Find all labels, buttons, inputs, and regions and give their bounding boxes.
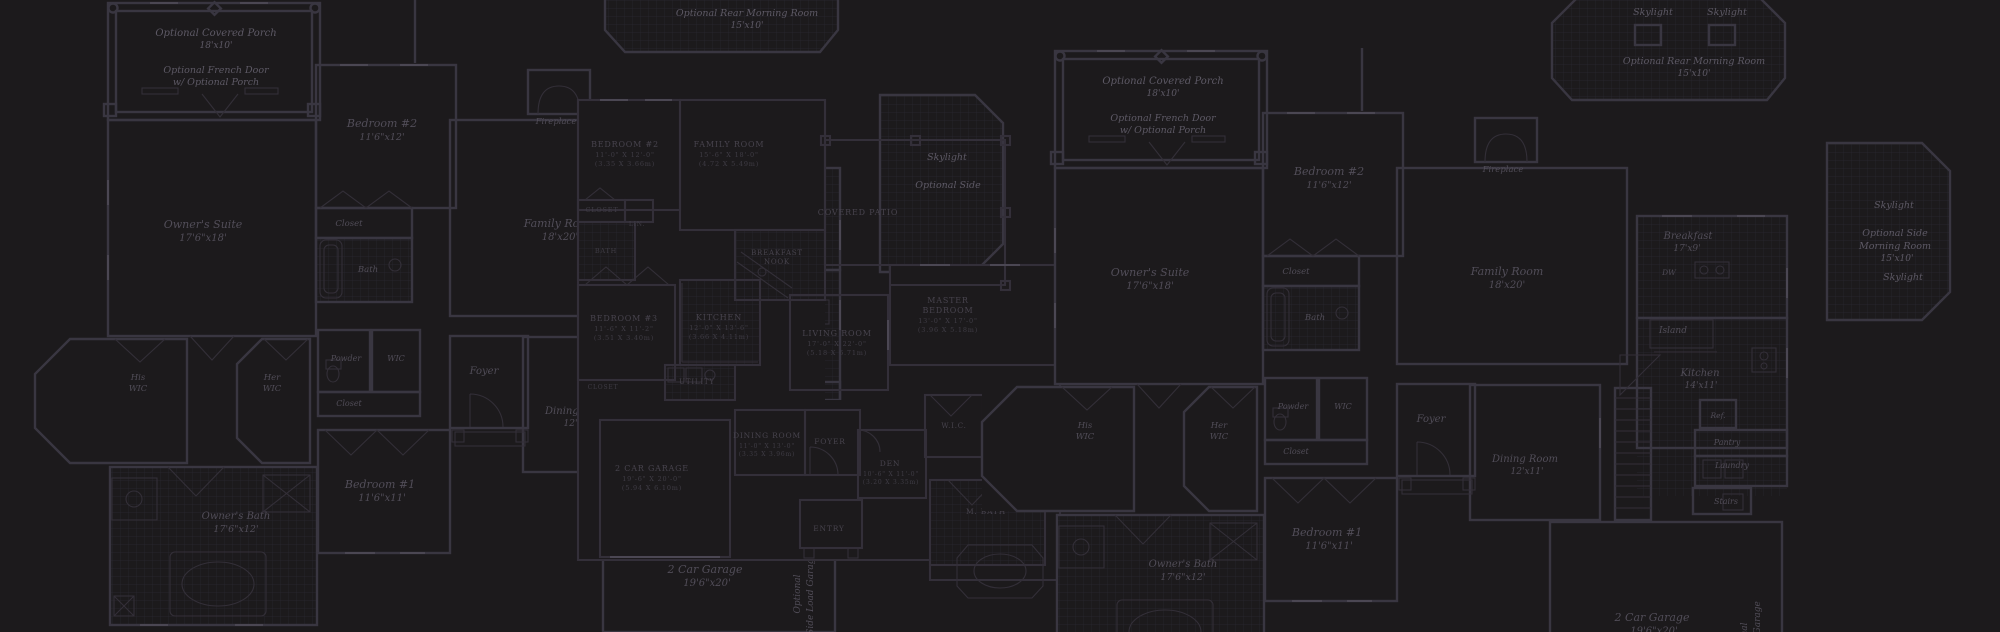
room-label: Kitchen — [1679, 368, 1719, 379]
room-label: Closet — [1282, 267, 1310, 277]
room-label: 11'-6" X 11'-2" — [594, 325, 654, 333]
room-label: Optional Covered Porch — [155, 28, 276, 39]
room-label: BEDROOM — [922, 306, 973, 315]
room-label: 19'-6" X 20'-0" — [622, 475, 682, 483]
room-label: 2 Car Garage — [1614, 611, 1690, 624]
room-label: 11'6"x11' — [1305, 541, 1353, 552]
room-label: DW — [1661, 268, 1677, 277]
room-label: Island — [1658, 326, 1687, 336]
room-label: Bedroom #2 — [1293, 165, 1364, 178]
room-label: 17'6"x12' — [213, 524, 258, 535]
room-label: w/ Optional Porch — [173, 77, 259, 88]
room-label: Ref. — [1710, 411, 1726, 420]
room-label: Powder — [330, 354, 363, 363]
room-label: 10'-6" X 11'-0" — [863, 471, 919, 478]
room-label: 17'6"x18' — [179, 233, 227, 244]
room-label: Family Room — [1470, 265, 1544, 278]
room-label: 11'6"x12' — [1306, 180, 1351, 191]
room-label: Fireplace — [535, 117, 577, 127]
room-label: Her — [1210, 421, 1228, 431]
room-label: Optional Rear Morning Room — [1623, 56, 1765, 67]
room-label: (5.18 X 6.71m) — [807, 349, 867, 357]
room-label: FAMILY ROOM — [694, 140, 765, 149]
room-label: Optional French Door — [1110, 113, 1217, 124]
room-label: Bath — [357, 265, 378, 275]
room-label: Stairs — [1714, 497, 1738, 506]
room-label: Optional — [1740, 622, 1750, 632]
room-label: KITCHEN — [696, 313, 742, 322]
room-label: His — [130, 373, 146, 383]
room-label: 15'x10' — [731, 21, 764, 31]
room-label: 14'x11' — [1685, 381, 1718, 391]
room-label: MASTER — [927, 296, 969, 305]
room-label: Side Load Garage — [1753, 601, 1763, 632]
room-label: Her — [263, 373, 281, 383]
room-label: Side Load Garage — [806, 553, 816, 632]
room-label: 19'6"x20' — [683, 578, 731, 589]
room-label: Optional Side — [1862, 228, 1928, 239]
room-label: BREAKFAST — [751, 249, 803, 257]
room-label: (5.94 X 6.10m) — [622, 484, 682, 492]
room-label: Owner's Suite — [1111, 266, 1190, 279]
room-label: Fireplace — [1482, 165, 1524, 175]
room-label: Bedroom #1 — [1291, 526, 1362, 539]
room-label: FOYER — [814, 437, 845, 446]
room-label: LIVING ROOM — [802, 329, 871, 338]
room-label: 2 Car Garage — [667, 563, 743, 576]
room-label: 11'-0" X 12'-0" — [595, 151, 655, 159]
room-label: (3.35 X 3.66m) — [595, 160, 655, 168]
room-label: BEDROOM #2 — [591, 140, 659, 149]
room-label: w/ Optional Porch — [1120, 125, 1206, 136]
floor-plans-svg: Optional Covered Porch18'x10'Optional Fr… — [0, 0, 2000, 632]
room-label: Foyer — [469, 366, 500, 377]
room-label: DINING ROOM — [733, 431, 801, 440]
room-label: ENTRY — [813, 524, 845, 533]
room-label: (3.51 X 3.40m) — [594, 334, 654, 342]
room-label: Closet — [1283, 447, 1309, 456]
room-label: (3.20 X 3.35m) — [863, 479, 919, 486]
room-label: 15'x10' — [1678, 69, 1711, 79]
room-label: (3.35 X 3.96m) — [739, 451, 795, 458]
room-label: 17'6"x18' — [1126, 281, 1174, 292]
room-label: Pantry — [1713, 438, 1741, 447]
room-label: 11'6"x11' — [358, 493, 406, 504]
room-label: WIC — [1334, 402, 1352, 411]
room-label: CLOSET — [588, 384, 619, 391]
room-label: Dining Room — [1491, 454, 1558, 465]
room-label: 18'x10' — [200, 41, 233, 51]
room-label: Skylight — [1883, 272, 1923, 283]
room-label: 18'x20' — [1489, 280, 1526, 291]
room-label: Closet — [336, 399, 362, 408]
room-label: 13'-0" X 17'-0" — [918, 317, 978, 325]
room-label: WIC — [263, 384, 282, 394]
room-label: 17'-0" X 22'-0" — [807, 340, 867, 348]
room-label: Skylight — [1707, 7, 1747, 18]
room-label: BEDROOM #3 — [590, 314, 658, 323]
room-label: 12'x11' — [1511, 467, 1544, 477]
room-label: Bedroom #1 — [344, 478, 415, 491]
room-label: 11'6"x12' — [359, 132, 404, 143]
room-label: (3.66 X 4.11m) — [689, 333, 749, 341]
room-label: Optional — [793, 574, 803, 613]
room-label: Skylight — [927, 152, 967, 163]
room-label: CLOSET — [586, 206, 619, 214]
room-label: Optional French Door — [163, 65, 270, 76]
room-label: LIN. — [629, 221, 645, 228]
room-label: W.I.C. — [941, 422, 966, 430]
plan-a-prototype — [982, 0, 1950, 632]
room-label: WIC — [1210, 432, 1229, 442]
room-label: Optional Covered Porch — [1102, 76, 1223, 87]
room-label: WIC — [1076, 432, 1095, 442]
room-label: 12'-0" X 13'-6" — [689, 324, 749, 332]
room-label: Foyer — [1416, 414, 1447, 425]
room-label: Skylight — [1633, 7, 1673, 18]
room-label: DEN — [880, 459, 900, 468]
room-label: Bath — [1304, 313, 1325, 323]
room-label: WIC — [387, 354, 405, 363]
room-label: 2 CAR GARAGE — [615, 464, 689, 473]
room-label: (4.72 X 5.49m) — [699, 160, 759, 168]
fireplace-icon — [1475, 118, 1537, 162]
room-label: 18'x10' — [1147, 89, 1180, 99]
room-label: Optional Side — [915, 180, 981, 191]
room-label: Owner's Bath — [1149, 559, 1218, 570]
room-label: Skylight — [1874, 200, 1914, 211]
room-label: Closet — [335, 219, 363, 229]
room-label: Powder — [1277, 402, 1310, 411]
room-label: WIC — [129, 384, 148, 394]
room-label: 15'-6" X 18'-0" — [699, 151, 759, 159]
room-label: Laundry — [1714, 461, 1749, 470]
blueprint-collage: Optional Covered Porch18'x10'Optional Fr… — [0, 0, 2000, 632]
floor-plan-right: Optional Covered Porch18'x10'Optional Fr… — [982, 0, 1950, 632]
room-label: COVERED PATIO — [818, 208, 898, 217]
room-label: UTILITY — [679, 378, 715, 386]
room-label: His — [1077, 421, 1093, 431]
room-label: Optional Rear Morning Room — [676, 8, 818, 19]
room-label: 17'6"x12' — [1160, 572, 1205, 583]
room-label: Owner's Bath — [202, 511, 271, 522]
room-label: Breakfast — [1663, 231, 1714, 242]
room-label: Owner's Suite — [164, 218, 243, 231]
room-label: NOOK — [764, 258, 790, 266]
room-label: 18'x20' — [542, 232, 579, 243]
room-label: Morning Room — [1858, 241, 1931, 252]
room-label: 11'-0" X 13'-0" — [739, 443, 795, 450]
room-label: BATH — [595, 247, 617, 255]
room-label: 15'x10' — [1881, 254, 1914, 264]
room-label: Bedroom #2 — [346, 117, 417, 130]
room-label: 17'x9' — [1673, 244, 1700, 254]
room-label: (3.96 X 5.18m) — [918, 326, 978, 334]
room-label: 19'6"x20' — [1630, 626, 1678, 632]
